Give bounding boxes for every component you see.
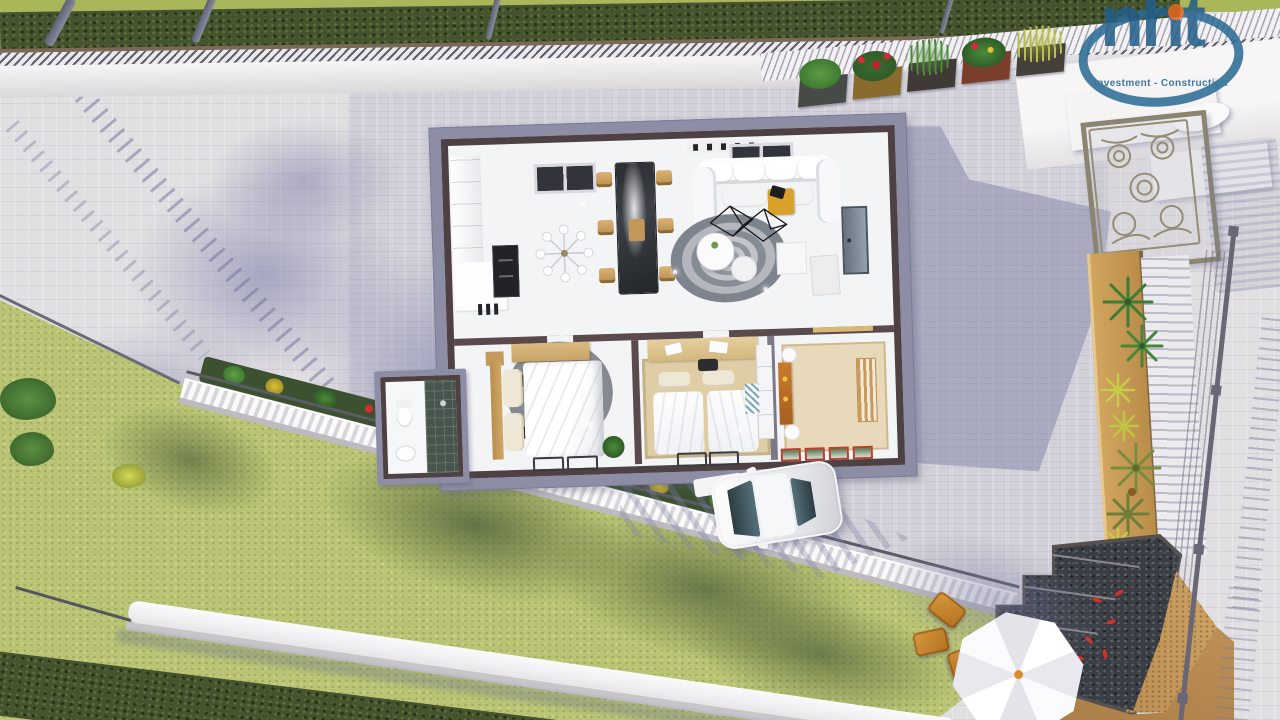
wall-vent — [478, 304, 482, 315]
wire-pendant-light — [708, 198, 789, 246]
gate-scrollwork — [1086, 117, 1203, 257]
garden-bush — [10, 432, 54, 466]
yellow-flower-bush — [112, 464, 146, 488]
logo-tagline: Investment - Construction — [1081, 78, 1241, 89]
cabinet-knob — [782, 376, 787, 381]
garden-bush — [0, 378, 56, 420]
bedroom2-desk — [647, 336, 758, 361]
door-mat — [810, 254, 841, 296]
dining-chair — [657, 218, 673, 233]
dining-chair — [599, 268, 615, 283]
pillow — [502, 369, 523, 408]
palm-shadow — [210, 120, 400, 240]
shoe-cabinet — [778, 362, 793, 424]
sofa-arm — [816, 159, 842, 224]
fence-post — [1193, 544, 1204, 555]
cabinet-knob — [783, 396, 788, 401]
downlight — [673, 270, 677, 274]
door-mat — [567, 455, 598, 470]
house — [428, 113, 917, 492]
oven-handle — [499, 259, 513, 261]
umbrella-finial — [1013, 669, 1024, 680]
paper — [665, 342, 683, 356]
wall-vent — [494, 303, 498, 314]
red-flower — [364, 404, 374, 414]
dining-chair — [656, 170, 672, 185]
table-tray — [628, 219, 645, 241]
fence-post — [1177, 693, 1188, 704]
bathroom — [374, 369, 470, 486]
pillow — [658, 371, 690, 388]
chandelier — [531, 220, 597, 286]
duvet — [653, 391, 705, 455]
logo-brand-text: nht — [1100, 0, 1203, 58]
logo-orange-dot — [1168, 4, 1184, 20]
dining-chair — [597, 220, 613, 235]
kitchen-tall-unit — [492, 245, 520, 298]
trellis-decor — [745, 383, 760, 413]
downlight — [738, 428, 742, 432]
sofa-cushion — [766, 159, 797, 180]
door-mat — [677, 452, 707, 467]
sink — [395, 445, 415, 462]
bedroom1-bed — [490, 358, 605, 459]
fence-post — [1228, 226, 1239, 237]
duvet — [523, 360, 605, 458]
terrace-door — [841, 206, 869, 275]
fence-post — [1211, 385, 1222, 396]
skylight — [534, 162, 597, 194]
kitchen-cabinets — [450, 156, 484, 271]
sofa-cushion — [734, 160, 765, 181]
floor-mat — [776, 242, 807, 275]
paper — [709, 341, 728, 354]
bathroom-interior — [380, 375, 463, 479]
door-mat — [709, 451, 739, 466]
pillow — [702, 370, 734, 387]
door-mat — [533, 457, 564, 472]
nht-logo: nht Investment - Construction — [1076, 0, 1246, 112]
dining-chair — [596, 172, 612, 187]
door-handle — [847, 238, 851, 242]
oven-handle — [499, 275, 513, 277]
car-mirror — [758, 542, 769, 549]
wall-vent — [486, 304, 490, 315]
slat-screen — [856, 358, 878, 423]
toilet-bowl — [397, 407, 412, 425]
shower-tiles — [424, 380, 458, 473]
pillow — [503, 413, 524, 452]
entry-glass-mat — [853, 446, 873, 460]
aerial-render-scene: nht Investment - Construction — [0, 0, 1280, 720]
